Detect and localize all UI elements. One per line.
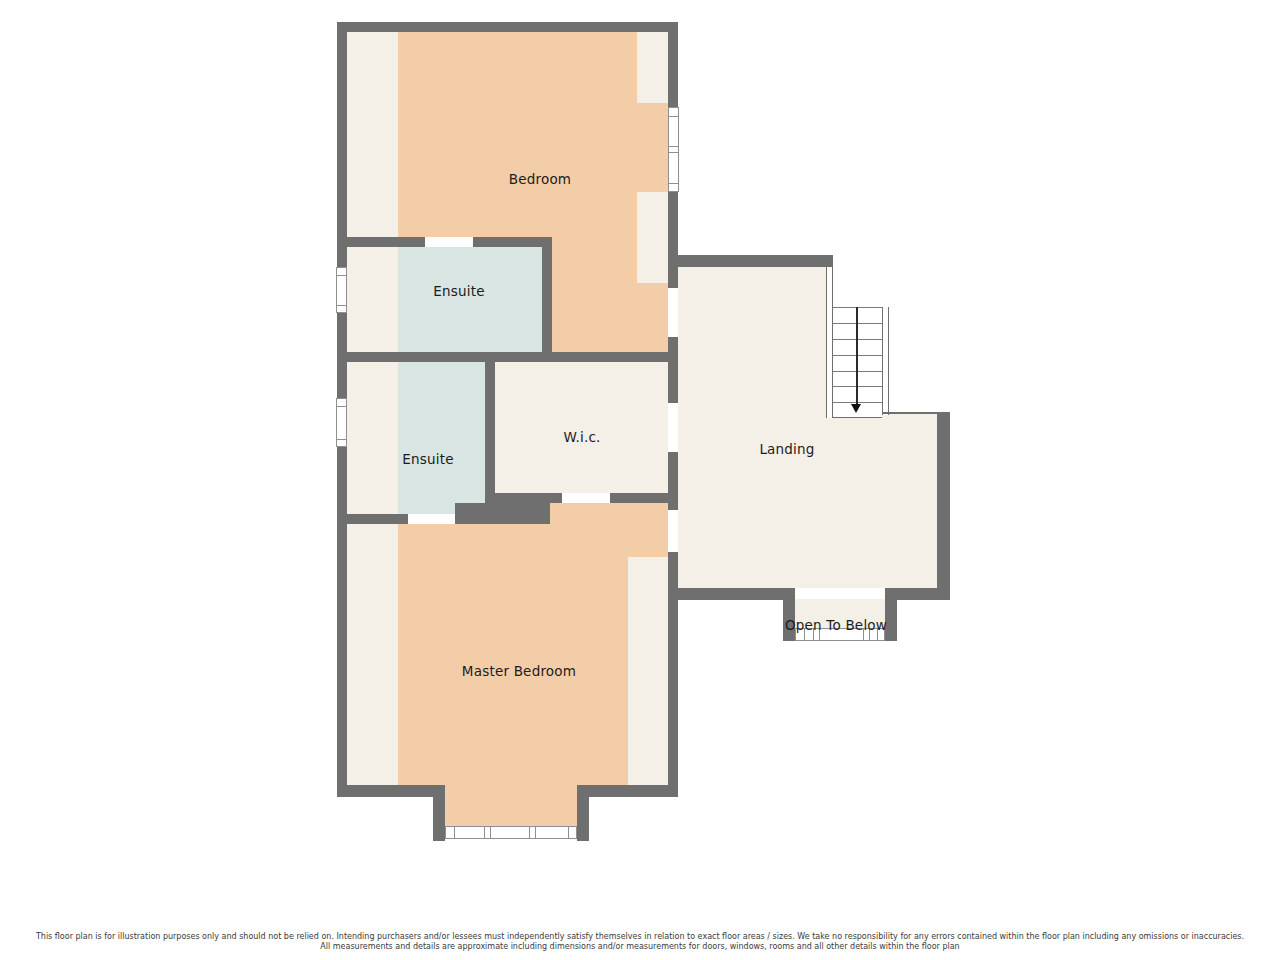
wall-bedroom-ensuite-b: [473, 237, 552, 247]
wall-top: [337, 22, 678, 32]
stairs-run-line: [856, 307, 858, 405]
wall-bay-left: [433, 785, 445, 841]
room-label-wic: W.i.c.: [563, 429, 600, 445]
ensuite-upper-floor: [398, 247, 542, 352]
wall-otb-left: [783, 588, 795, 641]
wall-bay-right: [577, 785, 589, 841]
floor-plan: Bedroom Ensuite Ensuite W.i.c. Landing M…: [0, 0, 1280, 960]
wall-bottom-right: [577, 785, 678, 797]
wall-wic-bottom-b: [610, 493, 678, 503]
stairs-treads: [833, 307, 882, 418]
window-ensuite-lower: [336, 398, 347, 447]
room-label-ensuite-upper: Ensuite: [433, 283, 484, 299]
bay-floor: [445, 785, 577, 828]
stairs-left-rail: [826, 267, 833, 418]
door-ensuite-upper: [425, 237, 473, 247]
open-to-below-opening: [795, 588, 885, 599]
ensuite-lower-floor: [398, 362, 485, 514]
wall-right-seg3: [668, 337, 678, 403]
wall-landing-bottom-left: [668, 588, 783, 600]
window-bedroom: [668, 107, 679, 192]
wall-wic-left: [485, 362, 495, 503]
wall-landing-right: [937, 412, 950, 600]
room-label-open-to-below: Open To Below: [785, 617, 887, 633]
wall-ensuite-lower-bottom: [337, 514, 408, 524]
stairs-landing-edge: [882, 412, 937, 414]
window-ensuite-upper: [336, 267, 347, 313]
stairs-right-rail: [882, 307, 889, 415]
room-label-bedroom: Bedroom: [509, 171, 571, 187]
window-bay: [445, 826, 577, 839]
wall-right-seg2: [668, 190, 678, 288]
wall-ensuite-upper-right: [542, 237, 552, 362]
door-wic-master: [562, 493, 610, 503]
disclaimer-line-2: All measurements and details are approxi…: [0, 942, 1280, 951]
door-ensuite-lower: [408, 514, 455, 524]
stairs-down-arrow-icon: [851, 404, 861, 413]
wall-bottom-left: [337, 785, 445, 797]
bedroom-wardrobe-area-top: [637, 32, 668, 103]
wall-wic-bottom-a: [485, 493, 562, 503]
bedroom-wardrobe-area-mid: [637, 192, 668, 283]
wall-bedroom-ensuite-a: [337, 237, 425, 247]
master-bedroom-wardrobe-area: [628, 557, 668, 785]
wall-right-seg1: [668, 22, 678, 108]
wall-otb-right: [885, 588, 897, 641]
wall-junction-block: [455, 503, 550, 524]
wall-landing-top: [678, 255, 833, 267]
master-bedroom-floor-notch: [550, 503, 668, 524]
room-label-master-bedroom: Master Bedroom: [462, 663, 576, 679]
room-label-landing: Landing: [759, 441, 814, 457]
room-label-ensuite-lower: Ensuite: [402, 451, 453, 467]
disclaimer-line-1: This floor plan is for illustration purp…: [0, 932, 1280, 941]
wall-mid-horizontal: [337, 352, 678, 362]
